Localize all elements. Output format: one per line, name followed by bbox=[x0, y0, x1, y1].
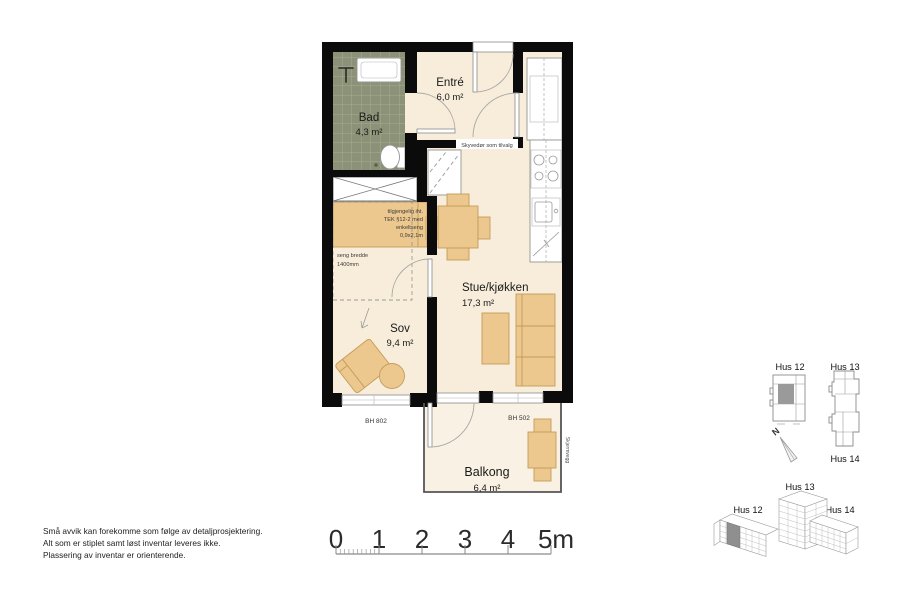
floorplan-page: Bad 4,3 m² Entré 6,0 m² Stue/kjøkken 17,… bbox=[0, 0, 900, 600]
iso-hus14-block bbox=[810, 515, 858, 554]
balcony-divider-label: Skjermvegg bbox=[564, 437, 570, 464]
balkong-area: 6,4 m² bbox=[474, 483, 501, 494]
sliding-door-label: Skyvedør som tilvalg bbox=[461, 143, 513, 149]
sov-label: Sov bbox=[390, 323, 410, 335]
sill-height-balcony: BH 502 bbox=[508, 415, 530, 422]
bed-width-note-1: seng bredde bbox=[337, 253, 368, 259]
site-hus12-outline bbox=[770, 375, 805, 424]
stue-label: Stue/kjøkken bbox=[462, 282, 528, 294]
bed-width-note-2: 1400mm bbox=[337, 262, 359, 268]
entre-label: Entré bbox=[436, 77, 464, 89]
balkong-label: Balkong bbox=[464, 465, 509, 479]
apartment-stack-highlight bbox=[727, 522, 740, 548]
iso-locator: Hus 13 Hus 12 Hus 14 bbox=[714, 482, 858, 557]
balcony-door-window bbox=[437, 393, 479, 403]
accessibility-note-4: 0,9x2,1m bbox=[400, 233, 423, 239]
bedroom-window bbox=[342, 395, 410, 405]
wardrobe-icon bbox=[333, 177, 417, 201]
bad-area: 4,3 m² bbox=[356, 127, 383, 138]
site-hus13-outline bbox=[829, 371, 859, 446]
coffee-table-icon bbox=[482, 313, 509, 364]
toilet-icon bbox=[381, 145, 406, 169]
site-hus13-label: Hus 13 bbox=[830, 362, 859, 372]
accessibility-note-1: tilgjengelig iht. bbox=[388, 209, 424, 215]
apartment-location-highlight bbox=[778, 384, 794, 404]
bathroom-sink-icon bbox=[357, 58, 401, 82]
utility-square-icon bbox=[428, 150, 461, 195]
floorplan-canvas: Bad 4,3 m² Entré 6,0 m² Stue/kjøkken 17,… bbox=[0, 0, 900, 600]
north-arrow-icon: N bbox=[770, 426, 797, 462]
disclaimer-line-2: Alt som er stiplet samt løst inventar le… bbox=[43, 538, 221, 548]
floor-drain-icon bbox=[374, 163, 378, 167]
living-room-window bbox=[493, 393, 543, 403]
site-hus12-label: Hus 12 bbox=[775, 362, 804, 372]
scale-bar: 0 1 2 3 4 5m bbox=[329, 524, 574, 554]
apartment-plan: Bad 4,3 m² Entré 6,0 m² Stue/kjøkken 17,… bbox=[322, 42, 573, 494]
site-locator: Hus 12 Hus 13 Hus 14 N bbox=[770, 362, 860, 464]
stue-area: 17,3 m² bbox=[462, 298, 494, 309]
accessibility-note-3: enkeltseng bbox=[396, 225, 423, 231]
iso-hus12-block bbox=[714, 514, 778, 557]
entre-area: 6,0 m² bbox=[437, 92, 464, 103]
iso-hus14-label: Hus 14 bbox=[825, 505, 854, 515]
site-hus14-label: Hus 14 bbox=[830, 454, 859, 464]
sill-height-bedroom: BH 802 bbox=[365, 418, 387, 425]
scale-tick-5: 5m bbox=[538, 524, 574, 554]
sofa-icon bbox=[516, 294, 555, 386]
disclaimer-line-1: Små avvik kan forekomme som følge av det… bbox=[43, 526, 263, 536]
disclaimer: Små avvik kan forekomme som følge av det… bbox=[43, 526, 263, 560]
disclaimer-line-3: Plassering av inventar er orienterende. bbox=[43, 550, 186, 560]
iso-hus12-label: Hus 12 bbox=[733, 505, 762, 515]
north-label: N bbox=[770, 426, 781, 438]
accessibility-note-2: TEK §12-2 med bbox=[384, 217, 423, 223]
bad-label: Bad bbox=[359, 112, 379, 124]
sov-area: 9,4 m² bbox=[387, 338, 414, 349]
pouf-icon bbox=[380, 364, 405, 389]
iso-hus13-label: Hus 13 bbox=[785, 482, 814, 492]
